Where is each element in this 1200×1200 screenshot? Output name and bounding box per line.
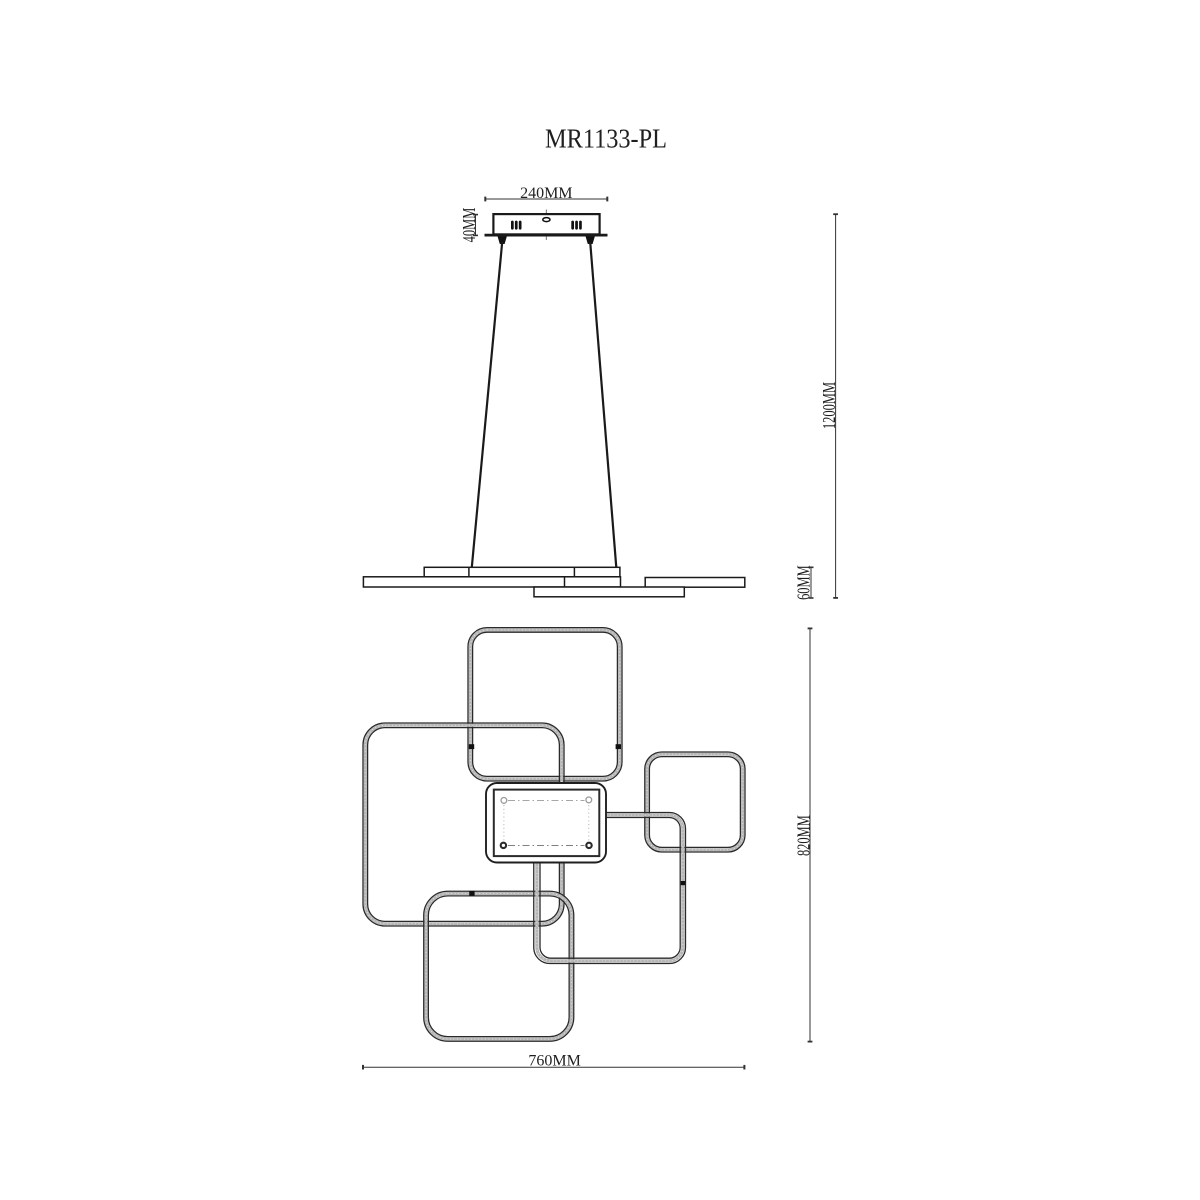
svg-text:820MM: 820MM <box>794 815 814 856</box>
svg-text:240MM: 240MM <box>520 185 572 202</box>
svg-text:1200MM: 1200MM <box>820 382 840 429</box>
svg-text:MR1133-PL: MR1133-PL <box>545 123 667 154</box>
svg-text:60MM: 60MM <box>794 565 814 600</box>
svg-text:760MM: 760MM <box>528 1053 580 1070</box>
svg-text:40MM: 40MM <box>460 208 480 243</box>
